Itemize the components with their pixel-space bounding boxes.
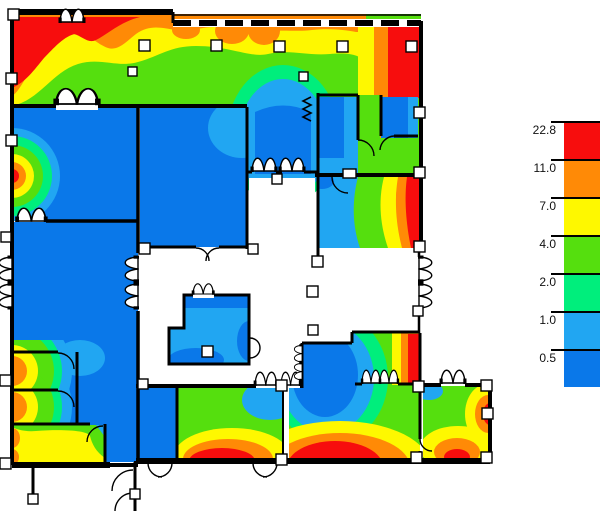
- legend-tick: [551, 235, 600, 237]
- legend-label: 2.0: [514, 276, 556, 289]
- heat-room-top-right: [381, 97, 418, 138]
- heat-room-left-large: [12, 222, 138, 352]
- legend-label: 11.0: [514, 162, 556, 175]
- heat-corridor-bottom: [139, 388, 178, 461]
- legend-band-yellow: [564, 197, 600, 235]
- heat-room-mid-right: [310, 173, 428, 248]
- legend-band-red: [564, 121, 600, 159]
- legend-tick: [551, 121, 600, 123]
- legend-band-green: [564, 235, 600, 273]
- legend-label: 0.5: [514, 352, 556, 365]
- heat-room-upper-left: [0, 107, 138, 224]
- legend-band-blue: [564, 349, 600, 387]
- legend-tick: [551, 159, 600, 161]
- heat-room-bottom-left-of-center: [174, 380, 298, 484]
- legend-tick: [551, 311, 600, 313]
- legend-label: 22.8: [514, 124, 556, 137]
- legend-band-spring: [564, 273, 600, 311]
- floor-plan: [0, 0, 600, 511]
- legend-band-orange: [564, 159, 600, 197]
- legend-tick: [551, 197, 600, 199]
- legend-tick: [551, 349, 600, 351]
- legend-label: 7.0: [514, 200, 556, 213]
- legend-label: 4.0: [514, 238, 556, 251]
- heat-room-bottom-right-wing: [415, 382, 509, 470]
- legend-band-lightblue: [564, 311, 600, 349]
- legend-tick: [551, 273, 600, 275]
- legend-label: 1.0: [514, 314, 556, 327]
- false-color-floorplan-view: { "palette": { "red": "#F70D0D", "orange…: [0, 0, 600, 511]
